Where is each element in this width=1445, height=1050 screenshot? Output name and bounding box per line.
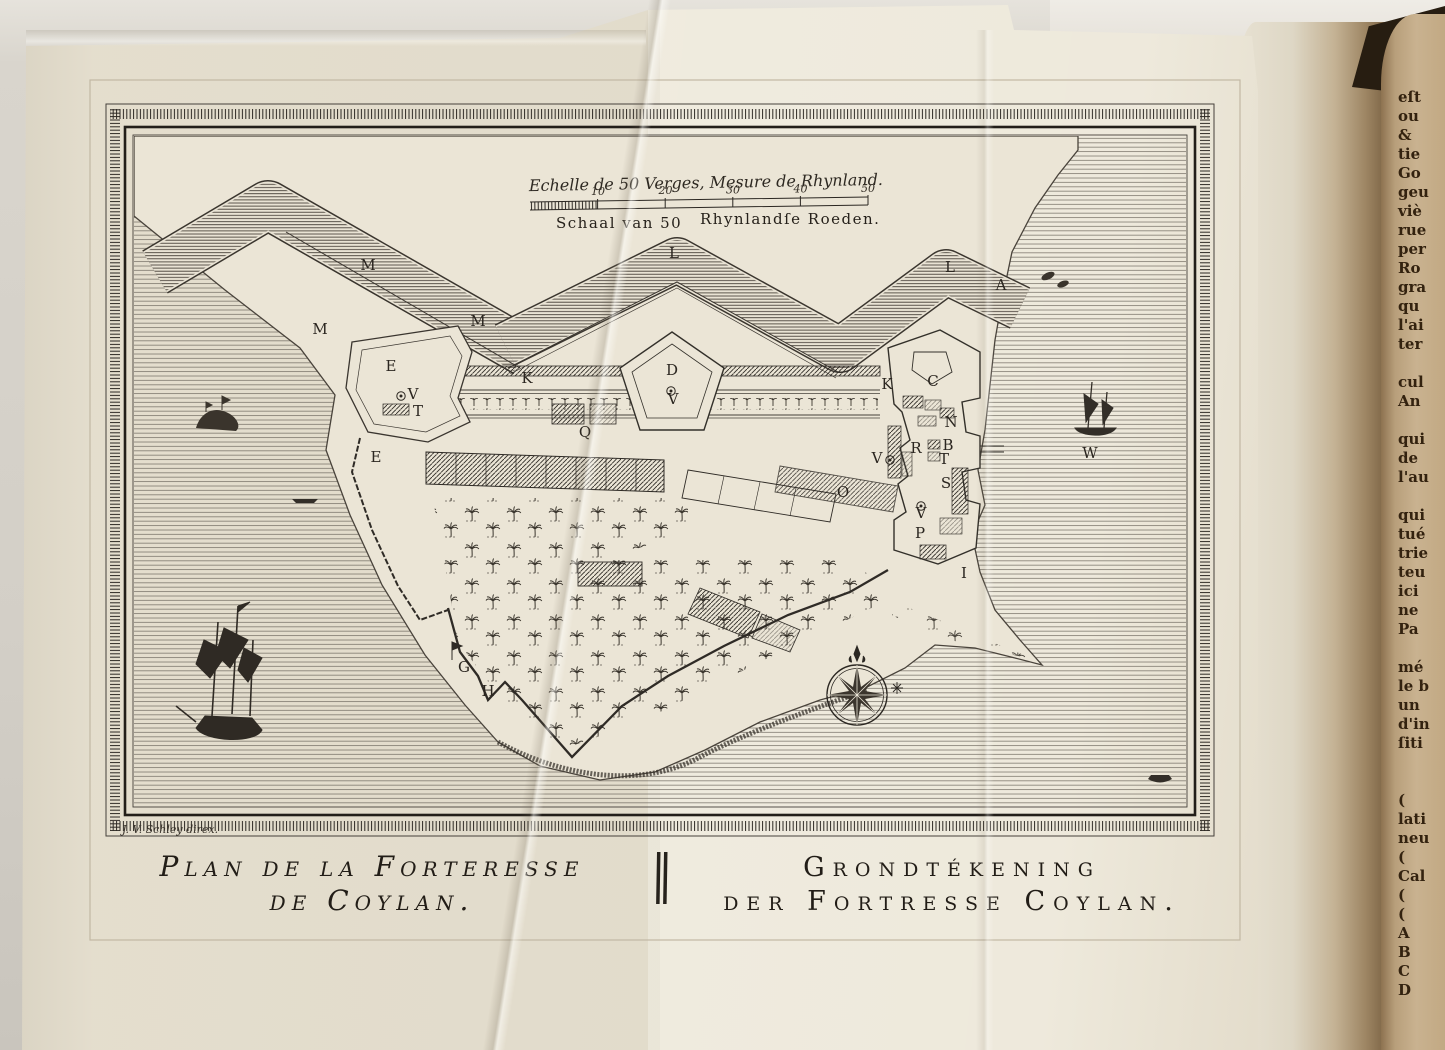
book-gutter-page-curve [1238, 22, 1394, 1050]
fold-crease-right [976, 30, 994, 1050]
adjacent-page-line: cul [1398, 373, 1445, 392]
adjacent-page-line: tué [1398, 525, 1445, 544]
adjacent-page-line: ( [1398, 905, 1445, 924]
adjacent-page-line: ou [1398, 107, 1445, 126]
adjacent-page-line [1398, 639, 1445, 658]
adjacent-page-line: qui [1398, 506, 1445, 525]
adjacent-page-line [1398, 753, 1445, 772]
folded-map-sheet [0, 0, 1445, 1050]
adjacent-page-line: B [1398, 943, 1445, 962]
adjacent-page-line: un [1398, 696, 1445, 715]
adjacent-page-line: Go [1398, 164, 1445, 183]
adjacent-book-page: eſtou&tieGogeuvièrueperRograqul'aitercul… [1381, 14, 1445, 1050]
adjacent-page-line: rue [1398, 221, 1445, 240]
adjacent-page-line: An [1398, 392, 1445, 411]
sheet-shading-left [0, 0, 660, 1050]
adjacent-page-line: viè [1398, 202, 1445, 221]
adjacent-page-line: ( [1398, 848, 1445, 867]
adjacent-page-line: & [1398, 126, 1445, 145]
adjacent-page-line: l'au [1398, 468, 1445, 487]
adjacent-page-line: tie [1398, 145, 1445, 164]
adjacent-page-line: gra [1398, 278, 1445, 297]
adjacent-page-line: eſt [1398, 88, 1445, 107]
adjacent-page-line: d'in [1398, 715, 1445, 734]
adjacent-page-line: lati [1398, 810, 1445, 829]
adjacent-page-line: geu [1398, 183, 1445, 202]
adjacent-page-line: per [1398, 240, 1445, 259]
adjacent-page-line: qui [1398, 430, 1445, 449]
adjacent-page-line [1398, 411, 1445, 430]
adjacent-page-text-column: eſtou&tieGogeuvièrueperRograqul'aitercul… [1398, 88, 1445, 1000]
adjacent-page-line: l'ai [1398, 316, 1445, 335]
adjacent-page-line: qu [1398, 297, 1445, 316]
adjacent-page-line [1398, 772, 1445, 791]
adjacent-page-line: ici [1398, 582, 1445, 601]
fold-crease-top [26, 30, 646, 46]
adjacent-page-line: ne [1398, 601, 1445, 620]
adjacent-page-line [1398, 354, 1445, 373]
adjacent-page-line [1398, 487, 1445, 506]
adjacent-page-line: le b [1398, 677, 1445, 696]
adjacent-page-line: ter [1398, 335, 1445, 354]
adjacent-page-line: ſiti [1398, 734, 1445, 753]
adjacent-page-line: C [1398, 962, 1445, 981]
adjacent-page-line: ( [1398, 791, 1445, 810]
adjacent-page-line: Ro [1398, 259, 1445, 278]
book-photo: eſtou&tieGogeuvièrueperRograqul'aitercul… [0, 0, 1445, 1050]
adjacent-page-line: mé [1398, 658, 1445, 677]
adjacent-page-line: D [1398, 981, 1445, 1000]
adjacent-page-line: neu [1398, 829, 1445, 848]
adjacent-page-line: ( [1398, 886, 1445, 905]
adjacent-page-line: teu [1398, 563, 1445, 582]
adjacent-page-line: A [1398, 924, 1445, 943]
adjacent-page-line: de [1398, 449, 1445, 468]
adjacent-page-line: Cal [1398, 867, 1445, 886]
sheet-shading-right [648, 0, 1258, 1050]
adjacent-page-line: trie [1398, 544, 1445, 563]
adjacent-page-line: Pa [1398, 620, 1445, 639]
